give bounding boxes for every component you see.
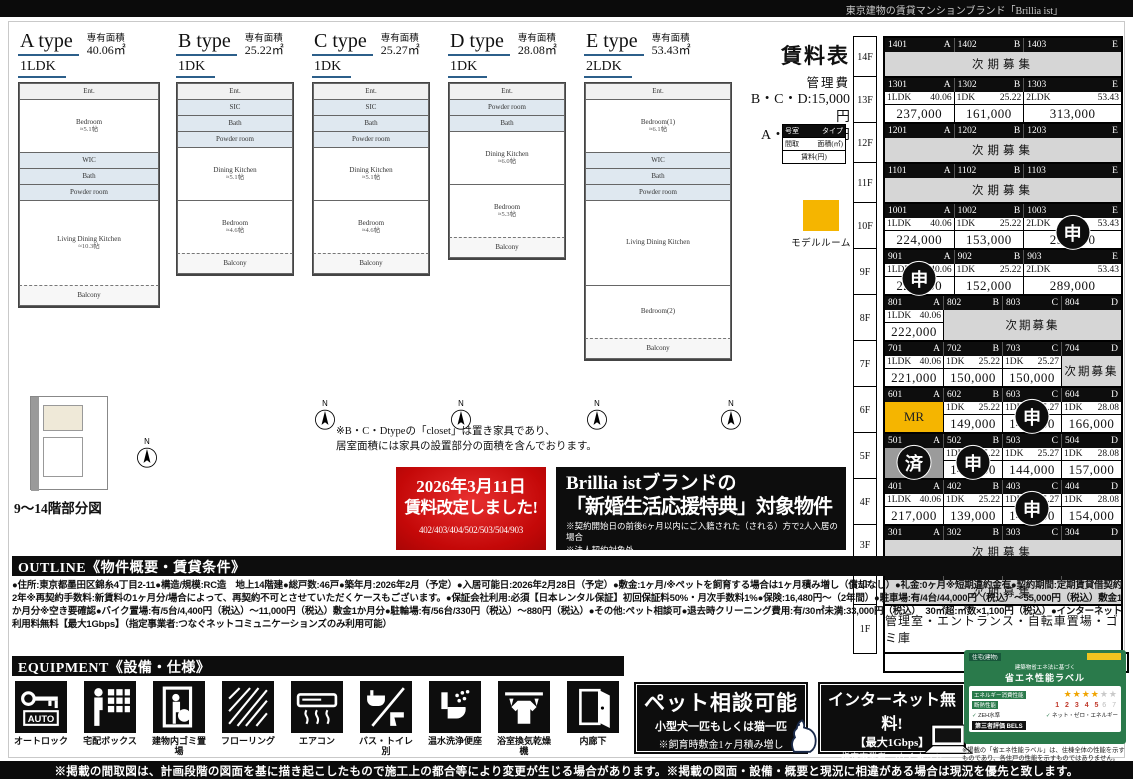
floor-block: 1301A1302B1303E1LDK40.06237,0001DK25.221… — [883, 76, 1123, 124]
floor-header-row: 1001A1002B1003E — [885, 204, 1121, 218]
next-term-cell: 次期募集 — [885, 178, 1121, 202]
unit-area: 40.06 — [930, 93, 951, 103]
revision-date: 2026年3月11日 — [396, 476, 546, 497]
unit-type-letter: A — [933, 528, 940, 538]
unit-type-letter: D — [1111, 436, 1118, 446]
equipment-item: 内廊下 — [564, 681, 622, 756]
plan-room: Bedroom(1)≈6.1帖 — [585, 99, 731, 153]
unit-header: 802B — [944, 296, 1003, 310]
room-size: ≈5.1帖 — [226, 174, 244, 181]
unit-type-letter: D — [1111, 344, 1118, 354]
unit-cell: 1DK28.08157,000 — [1062, 448, 1121, 478]
unit-header: 701A — [885, 342, 944, 356]
unit-cell: 1DK25.22144,000申 — [944, 448, 1003, 478]
applied-badge: 申 — [1016, 400, 1049, 433]
unit-cell: 1LDK40.06224,000 — [885, 218, 955, 248]
floor-body: 1LDK40.06222,000次期募集 — [885, 310, 1121, 340]
unit-area: 53.43 — [1098, 219, 1119, 229]
unit-number: 1002 — [958, 206, 977, 216]
floor-block: 901A902B903E1LDK40.06223,000申1DK25.22152… — [883, 248, 1123, 296]
floor-block: 801A802B803C804D1LDK40.06222,000次期募集 — [883, 294, 1123, 342]
model-room-cell: MR — [885, 402, 944, 432]
unit-plan: 1LDK — [887, 311, 911, 321]
unit-cell: 1LDK40.06217,000 — [885, 494, 944, 524]
energy-check2: ネット・ゼロ・エネルギー — [1052, 713, 1118, 719]
unit-header: 1402B — [955, 38, 1025, 52]
rent-floor-row-14F: 14F1401A1402B1403E次期募集 — [853, 36, 1129, 78]
plan-room: Living Dining Kitchen≈10.3帖 — [19, 200, 159, 286]
unit-number: 801 — [888, 298, 902, 308]
unit-number: 501 — [888, 436, 902, 446]
unit-rent: 217,000 — [885, 507, 943, 524]
unit-type-row: 2LDK53.43 — [1024, 92, 1121, 105]
mgmt-fee-bcd: B・C・D:15,000円 — [742, 91, 850, 127]
unit-cell: 1LDK40.06237,000 — [885, 92, 955, 122]
unit-type-letter: D — [1111, 390, 1118, 400]
unit-rent: 237,000 — [885, 105, 954, 122]
svg-text:N: N — [594, 399, 600, 408]
floor-block: 501A502B503C504D済1DK25.22144,000申1DK25.2… — [883, 432, 1123, 480]
unit-number: 1003 — [1027, 206, 1046, 216]
brand-text: 東京建物の賃貸マンションブランド「Brillia ist」 — [846, 6, 1063, 17]
plan-type-label: D type — [448, 30, 510, 56]
unit-type-row: 1DK25.22 — [944, 402, 1002, 415]
unit-rent: 161,000 — [955, 105, 1024, 122]
unit-number: 901 — [888, 252, 902, 262]
floor-header-row: 1301A1302B1303E — [885, 78, 1121, 92]
floor-header-row: 301A302B303C304D — [885, 526, 1121, 540]
plan-room: Dining Kitchen≈5.1帖 — [177, 147, 293, 201]
unit-area: 53.43 — [1098, 265, 1119, 275]
unit-type-letter: A — [933, 298, 940, 308]
next-term-cell: 次期募集 — [885, 138, 1121, 162]
energy-caption: ※掲載の「省エネ性能ラベル」は、住棟全体の性能を示すものであり、各住戸の性能を示… — [962, 747, 1130, 762]
unit-type-letter: C — [1052, 298, 1058, 308]
rent-floor-row-8F: 8F801A802B803C804D1LDK40.06222,000次期募集 — [853, 294, 1129, 342]
applied-badge: 申 — [1056, 216, 1089, 249]
unit-type-row: 1DK25.22 — [944, 494, 1002, 507]
model-room-swatch — [803, 200, 839, 231]
bathroom-dryer-icon — [498, 681, 550, 733]
floor-body: 1LDK40.06217,0001DK25.22139,0001DK25.271… — [885, 494, 1121, 524]
unit-type-letter: A — [933, 390, 940, 400]
plan-room: Bedroom≈4.6帖 — [313, 200, 429, 254]
room-label: Powder room — [488, 104, 526, 112]
next-term-cell: 次期募集 — [1062, 356, 1121, 386]
unit-number: 404 — [1065, 482, 1079, 492]
plan-room: Balcony — [449, 237, 565, 258]
floor-label: 10F — [853, 202, 877, 250]
unit-type-letter: B — [1014, 206, 1020, 216]
unit-header: 902B — [955, 250, 1025, 264]
floorplan-drawing: Ent.Powder roomBathDining Kitchen≈6.0帖Be… — [448, 82, 566, 260]
plan-room: Bedroom≈5.1帖 — [19, 99, 159, 153]
equipment-item: 建物内ゴミ置場 — [150, 681, 208, 756]
unit-area: 25.22 — [1000, 93, 1021, 103]
unit-type-row: 1DK25.22 — [955, 264, 1024, 277]
floor-body: 済1DK25.22144,000申1DK25.27144,0001DK28.08… — [885, 448, 1121, 478]
unit-area: 25.22 — [979, 357, 1000, 367]
spacer — [853, 652, 883, 673]
room-label: SIC — [230, 104, 241, 112]
unit-number: 1202 — [958, 126, 977, 136]
unit-rent: 166,000 — [1062, 415, 1121, 432]
plan-layout-label: 1DK — [176, 58, 215, 78]
floor-header-row: 501A502B503C504D — [885, 434, 1121, 448]
unit-number: 702 — [947, 344, 961, 354]
floor-block: 1101A1102B1103E次期募集 — [883, 162, 1123, 204]
floor-label: 13F — [853, 76, 877, 124]
room-label: Powder room — [216, 136, 254, 144]
energy-check1: ZEH水準 — [978, 713, 1000, 719]
unit-plan: 2LDK — [1026, 93, 1050, 103]
unit-rent: 144,000 — [1003, 461, 1061, 478]
equipment-item: 浴室換気乾燥機 — [495, 681, 553, 756]
unit-type-letter: A — [933, 436, 940, 446]
unit-number: 1302 — [958, 80, 977, 90]
compass-icon: N — [718, 398, 744, 436]
plan-room: Powder room — [449, 99, 565, 116]
unit-header: 303C — [1003, 526, 1062, 540]
floorplan-type-d: D type 1DK 専有面積 28.08㎡ Ent.Powder roomBa… — [448, 30, 566, 260]
floorplan-type-e: E type 2LDK 専有面積 53.43㎡ Ent.Bedroom(1)≈6… — [584, 30, 732, 361]
floorplan-drawing: Ent.Bedroom(1)≈6.1帖WICBathPowder roomLiv… — [584, 82, 732, 361]
autolock-icon: AUTO — [15, 681, 67, 733]
legend-area: 面積(㎡) — [817, 139, 843, 149]
floor-body: MR1DK25.22149,0001DK25.27147,000申1DK28.0… — [885, 402, 1121, 432]
unit-type-row: 1DK25.27 — [1003, 356, 1061, 369]
area-value: 53.43㎡ — [652, 44, 691, 57]
floor-header-row: 601A602B603C604D — [885, 388, 1121, 402]
unit-header: 604D — [1062, 388, 1121, 402]
plan-room: Bedroom≈4.6帖 — [177, 200, 293, 254]
unit-type-letter: B — [993, 436, 999, 446]
unit-type-letter: A — [944, 40, 951, 50]
unit-rent: 222,000 — [885, 323, 943, 340]
unit-number: 1103 — [1027, 166, 1046, 176]
plan-room: Dining Kitchen≈5.1帖 — [313, 147, 429, 201]
plan-room: SIC — [177, 99, 293, 116]
unit-rent: 152,000 — [955, 277, 1024, 294]
mgmt-fee-label: 管理費 — [742, 72, 850, 91]
floor-label: 11F — [853, 162, 877, 204]
floor-block: 1001A1002B1003E1LDK40.06224,0001DK25.221… — [883, 202, 1123, 250]
plan-room: Powder room — [19, 184, 159, 201]
unit-type-letter: E — [1112, 166, 1118, 176]
area-value: 40.06㎡ — [87, 44, 126, 57]
floorplan-type-c: C type 1DK 専有面積 25.27㎡ Ent.SICBathPowder… — [312, 30, 430, 276]
unit-header: 1202B — [955, 124, 1025, 138]
leased-badge: 済 — [898, 446, 931, 479]
unit-type-letter: E — [1112, 206, 1118, 216]
bels-badge: 第三者評価 BELS — [972, 721, 1026, 730]
unit-type-letter: A — [944, 166, 951, 176]
plan-room: Bath — [449, 115, 565, 132]
floor-body: 次期募集 — [885, 52, 1121, 76]
unit-rent: 289,000 — [1024, 277, 1121, 294]
unit-cell: 1DK25.27141,000申 — [1003, 494, 1062, 524]
next-term-cell: 次期募集 — [944, 310, 1121, 340]
room-label: Ent. — [501, 88, 512, 96]
equipment-header: EQUIPMENT《設備・仕様》 — [12, 656, 624, 676]
plan-room: Bedroom(2) — [585, 285, 731, 339]
unit-number: 1001 — [888, 206, 907, 216]
unit-rent: 149,000 — [944, 415, 1002, 432]
plan-type-label: E type — [584, 30, 644, 56]
delivery-box-icon — [84, 681, 136, 733]
room-label: Living Dining Kitchen — [626, 239, 690, 247]
unit-number: 1203 — [1027, 126, 1046, 136]
unit-number: 1201 — [888, 126, 907, 136]
plan-type-label: C type — [312, 30, 373, 56]
unit-type-letter: B — [1014, 80, 1020, 90]
rent-table-floors: 14F1401A1402B1403E次期募集13F1301A1302B1303E… — [853, 36, 1129, 673]
wall-shape — [31, 397, 39, 491]
unit-plan: 1DK — [957, 93, 975, 103]
room-label: Bath — [651, 173, 664, 181]
unit-cell: 1DK25.22153,000 — [955, 218, 1025, 248]
closet-note: ※B・C・Dtypeの「closet」は置き家具であり、 居室面積には家具の設置… — [336, 424, 666, 454]
legend-rent: 賃料(円) — [801, 152, 827, 162]
pet-title: ペット相談可能 — [634, 687, 808, 717]
area-value: 25.27㎡ — [381, 44, 420, 57]
unit-number: 903 — [1027, 252, 1041, 262]
rent-floor-row-12F: 12F1201A1202B1203E次期募集 — [853, 122, 1129, 164]
unit-number: 601 — [888, 390, 902, 400]
unit-type-row: 2LDK53.43 — [1024, 264, 1121, 277]
room-label: Ent. — [229, 88, 240, 96]
plan-room: Powder room — [313, 131, 429, 148]
separate-bath-toilet-icon — [360, 681, 412, 733]
rent-floor-row-13F: 13F1301A1302B1303E1LDK40.06237,0001DK25.… — [853, 76, 1129, 124]
next-term-cell: 次期募集 — [885, 52, 1121, 76]
equipment-item: 温水洗浄便座 — [426, 681, 484, 756]
unit-header: 1401A — [885, 38, 955, 52]
floor-header-row: 1401A1402B1403E — [885, 38, 1121, 52]
unit-rent: 221,000 — [885, 369, 943, 386]
unit-plan: 2LDK — [1026, 265, 1050, 275]
unit-plan: 1DK — [957, 219, 975, 229]
unit-plan: 1DK — [1064, 449, 1082, 459]
unit-type-letter: D — [1111, 482, 1118, 492]
room-size: ≈4.6帖 — [226, 227, 244, 234]
unit-rent: 153,000 — [955, 231, 1024, 248]
unit-cell: 1DK25.27144,000 — [1003, 448, 1062, 478]
unit-type-row: 1LDK40.06 — [885, 494, 943, 507]
unit-type-letter: A — [944, 126, 951, 136]
room-label: WIC — [82, 157, 96, 165]
unit-type-row: 1LDK40.06 — [885, 310, 943, 323]
revision-rooms: 402/403/404/502/503/504/903 — [396, 525, 546, 535]
floor-body: 1LDK40.06224,0001DK25.22153,0002LDK53.43… — [885, 218, 1121, 248]
room-label: Powder room — [70, 189, 108, 197]
room-label: Bath — [364, 120, 377, 128]
plan-room: Balcony — [19, 285, 159, 306]
unit-area: 40.06 — [930, 219, 951, 229]
energy-subtitle: 建築物省エネ法に基づく — [969, 663, 1121, 671]
applied-badge: 申 — [957, 446, 990, 479]
unit-header: 1002B — [955, 204, 1025, 218]
room-label: Bath — [228, 120, 241, 128]
outline-body: ●住所:東京都墨田区錦糸4丁目2-11●構造/規模:RC造 地上14階建●総戸数… — [12, 579, 1122, 653]
rent-legend: 号室タイプ 間取面積(㎡) 賃料(円) — [782, 124, 846, 164]
plan-room: WIC — [19, 152, 159, 169]
unit-type-letter: B — [1014, 40, 1020, 50]
unit-area: 25.27 — [1038, 449, 1059, 459]
unit-plan: 1DK — [1005, 449, 1023, 459]
unit-header: 1101A — [885, 164, 955, 178]
room-size: ≈10.3帖 — [78, 243, 99, 250]
unit-header: 401A — [885, 480, 944, 494]
plan-layout-label: 1DK — [448, 58, 487, 78]
applied-badge: 申 — [903, 262, 936, 295]
floor-block: 1401A1402B1403E次期募集 — [883, 36, 1123, 78]
room-size: ≈5.3帖 — [498, 211, 516, 218]
svg-text:N: N — [144, 437, 150, 446]
rent-revision-box: 2026年3月11日 賃料改定しました! 402/403/404/502/503… — [396, 467, 546, 550]
energy-consumption-label: エネルギー消費性能 — [972, 691, 1026, 699]
room-label: Balcony — [646, 345, 669, 353]
unit-area: 28.08 — [1098, 495, 1119, 505]
unit-number: 803 — [1006, 298, 1020, 308]
unit-type-letter: A — [933, 482, 940, 492]
unit-plan: 1DK — [1064, 495, 1082, 505]
insulation-scale-on: 1 2 3 4 5 — [1055, 702, 1100, 709]
unit-type-letter: B — [1014, 252, 1020, 262]
unit-number: 1403 — [1027, 40, 1046, 50]
unit-plan: 1LDK — [887, 219, 911, 229]
floor-header-row: 801A802B803C804D — [885, 296, 1121, 310]
plan-room: Bath — [313, 115, 429, 132]
unit-type-letter: C — [1052, 482, 1058, 492]
unit-header: 404D — [1062, 480, 1121, 494]
unit-type-letter: B — [993, 344, 999, 354]
unit-type-letter: C — [1052, 344, 1058, 354]
plan-room: Balcony — [177, 253, 293, 274]
room-label: Bedroom(2) — [641, 308, 675, 316]
unit-type-row: 1DK25.22 — [955, 92, 1024, 105]
unit-rent: 139,000 — [944, 507, 1002, 524]
floorplan-drawing: Ent.SICBathPowder roomDining Kitchen≈5.1… — [176, 82, 294, 276]
unit-type-letter: B — [993, 298, 999, 308]
floor-body: 次期募集 — [885, 178, 1121, 202]
unit-rent: 150,000 — [1003, 369, 1061, 386]
unit-number: 1303 — [1027, 80, 1046, 90]
unit-type-row: 1LDK40.06 — [885, 218, 954, 231]
unit-number: 1402 — [958, 40, 977, 50]
energy-chip-housing: 住宅(建物) — [969, 653, 1001, 661]
room-label: Powder room — [639, 189, 677, 197]
rent-floor-row-10F: 10F1001A1002B1003E1LDK40.06224,0001DK25.… — [853, 202, 1129, 250]
garbage-room-icon — [153, 681, 205, 733]
unit-plan: 1DK — [1005, 357, 1023, 367]
room-label: Balcony — [495, 244, 518, 252]
unit-cell: 1LDK40.06223,000申 — [885, 264, 955, 294]
unit-plan: 1DK — [946, 357, 964, 367]
leased-cell: 済 — [885, 448, 944, 478]
unit-number: 603 — [1006, 390, 1020, 400]
campaign-note2: ※法人契約対象外 — [566, 545, 838, 556]
unit-area: 53.43 — [1098, 93, 1119, 103]
unit-header: 702B — [944, 342, 1003, 356]
unit-number: 704 — [1065, 344, 1079, 354]
unit-type-row: 1DK25.27 — [1003, 448, 1061, 461]
unit-type-letter: E — [1112, 126, 1118, 136]
plan-room: Ent. — [313, 83, 429, 100]
unit-type-letter: E — [1112, 40, 1118, 50]
equipment-item: エアコン — [288, 681, 346, 756]
unit-number: 303 — [1006, 528, 1020, 538]
energy-stars-on: ★★★★ — [1064, 689, 1100, 699]
unit-type-letter: B — [1014, 126, 1020, 136]
unit-cell: 1DK25.22152,000 — [955, 264, 1025, 294]
plan-room: Bedroom≈5.3帖 — [449, 184, 565, 238]
area-value: 25.22㎡ — [245, 44, 284, 57]
unit-rent: 224,000 — [885, 231, 954, 248]
unit-area: 25.27 — [1038, 357, 1059, 367]
partial-room — [43, 405, 83, 431]
legend-room: 号室 — [785, 126, 799, 136]
unit-number: 301 — [888, 528, 902, 538]
inner-corridor-icon — [567, 681, 619, 733]
unit-number: 1102 — [958, 166, 977, 176]
equipment-item: バス・トイレ別 — [357, 681, 415, 756]
unit-type-letter: B — [993, 390, 999, 400]
dog-icon — [786, 714, 822, 758]
energy-title: 省エネ性能ラベル — [969, 671, 1121, 684]
room-label: Ent. — [83, 88, 94, 96]
svg-text:N: N — [728, 399, 734, 408]
unit-type-letter: A — [933, 344, 940, 354]
room-label: Balcony — [359, 260, 382, 268]
floor-label: 7F — [853, 340, 877, 388]
unit-type-letter: B — [993, 528, 999, 538]
compass-icon: N — [312, 398, 338, 436]
unit-number: 604 — [1065, 390, 1079, 400]
unit-header: 402B — [944, 480, 1003, 494]
unit-number: 1401 — [888, 40, 907, 50]
plan-room: Balcony — [585, 338, 731, 359]
room-label: Powder room — [352, 136, 390, 144]
plan-room: Ent. — [449, 83, 565, 100]
room-size: ≈6.1帖 — [649, 126, 667, 133]
unit-header: 602B — [944, 388, 1003, 402]
unit-type-letter: C — [1052, 436, 1058, 446]
unit-plan: 1LDK — [887, 93, 911, 103]
insulation-label: 断熱性能 — [972, 701, 998, 709]
unit-cell: 2LDK53.43289,000 — [1024, 264, 1121, 294]
floor-label: 9F — [853, 248, 877, 296]
unit-header: 302B — [944, 526, 1003, 540]
unit-number: 402 — [947, 482, 961, 492]
unit-area: 25.22 — [1000, 219, 1021, 229]
unit-type-row: 1DK25.22 — [955, 218, 1024, 231]
plan-room: Bath — [19, 168, 159, 185]
revision-text: 賃料改定しました! — [396, 497, 546, 518]
floor-header-row: 401A402B403C404D — [885, 480, 1121, 494]
unit-area: 25.22 — [1000, 265, 1021, 275]
top-brand-bar: 東京建物の賃貸マンションブランド「Brillia ist」 — [0, 0, 1133, 17]
unit-header: 304D — [1062, 526, 1121, 540]
model-room-legend: モデルルーム — [786, 200, 856, 249]
unit-header: 301A — [885, 526, 944, 540]
room-size: ≈5.1帖 — [362, 174, 380, 181]
unit-header: 1103E — [1024, 164, 1121, 178]
unit-header: 504D — [1062, 434, 1121, 448]
campaign-line1: Brillia istブランドの — [566, 473, 838, 495]
unit-area: 40.06 — [920, 495, 941, 505]
unit-plan: 1LDK — [887, 357, 911, 367]
